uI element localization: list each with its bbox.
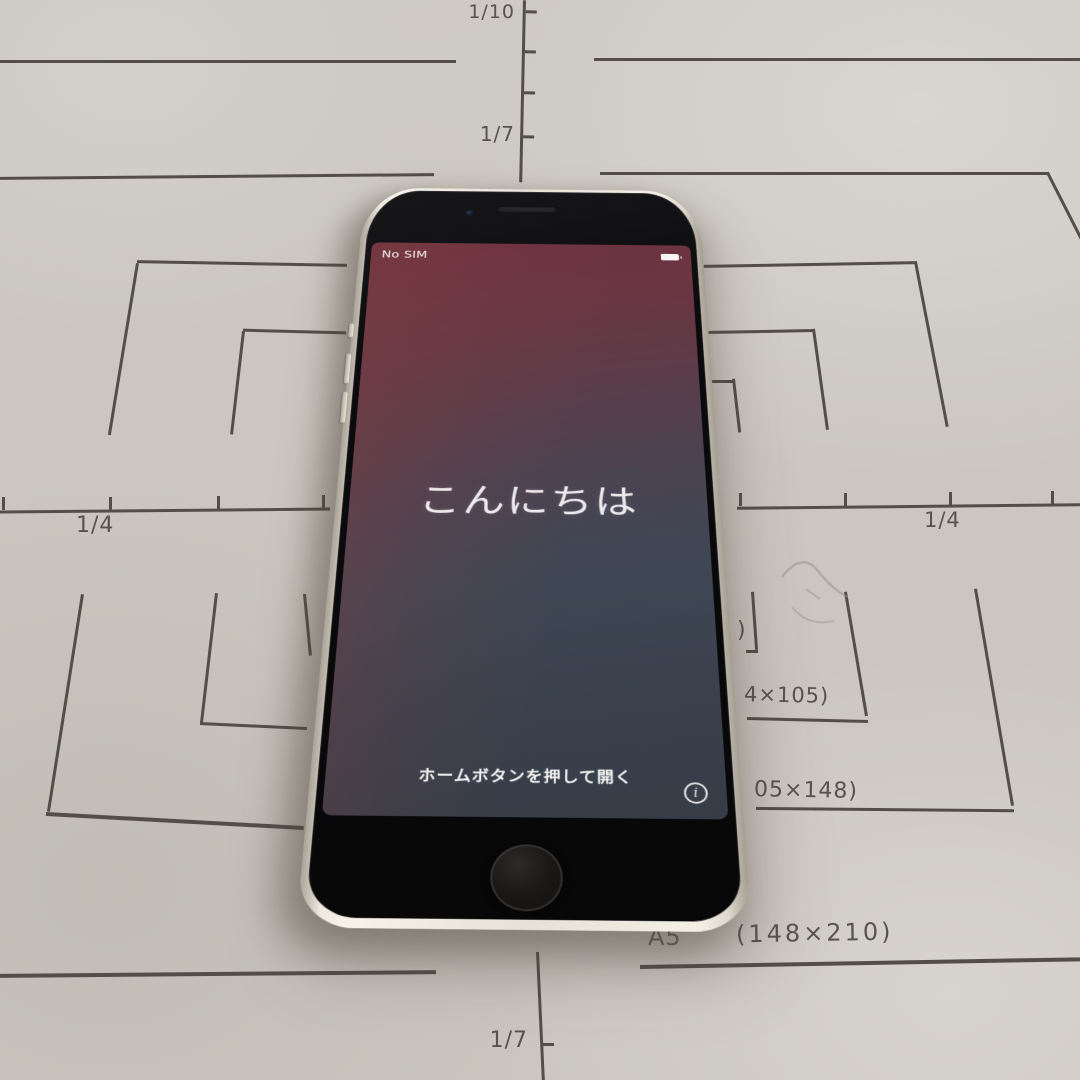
photo-scene: 1/10 1/7 1/4 1/4 ) 4×105) 05×148) xyxy=(0,0,1080,1080)
paper-line xyxy=(640,957,1080,969)
crop-mark xyxy=(974,588,1014,805)
setup-screen: No SIM こんにちは ホームボタンを押して開く i xyxy=(322,242,729,819)
size-label-b7-fragment: ) xyxy=(737,618,747,643)
crop-mark xyxy=(303,594,312,656)
crop-mark xyxy=(703,261,917,268)
paper-line-corner xyxy=(1046,172,1080,245)
crop-mark xyxy=(812,329,829,430)
front-camera xyxy=(466,210,475,216)
crop-mark xyxy=(200,593,218,722)
ruler-tick xyxy=(322,495,325,508)
crop-mark xyxy=(200,722,307,730)
paper-line xyxy=(0,970,436,978)
scale-label-1-4-left: 1/4 xyxy=(76,513,114,538)
ruler-tick xyxy=(526,10,537,13)
paper-line xyxy=(0,173,434,180)
crop-mark xyxy=(732,379,741,433)
crop-mark xyxy=(243,329,346,335)
size-label-a5-dims: (148×210) xyxy=(736,918,894,949)
crop-mark xyxy=(746,650,758,653)
mute-switch xyxy=(348,324,354,338)
size-label-a7-fragment: 4×105) xyxy=(744,682,830,707)
ruler-tick xyxy=(949,492,952,505)
crop-mark xyxy=(46,812,304,830)
scale-label-1-4-right: 1/4 xyxy=(924,508,961,532)
ruler-tick xyxy=(844,493,847,506)
pencil-scribble xyxy=(770,545,880,655)
paper-line xyxy=(600,172,1048,175)
crop-mark xyxy=(108,263,139,435)
top-ruler xyxy=(507,0,541,183)
ruler-tick xyxy=(1051,491,1054,504)
ruler-tick xyxy=(524,91,535,94)
size-label-a6-fragment: 05×148) xyxy=(754,777,858,804)
volume-down-button xyxy=(340,392,348,423)
hello-greeting: こんにちは xyxy=(348,473,709,525)
scale-label-1-10: 1/10 xyxy=(455,1,515,23)
ruler-tick xyxy=(109,497,112,510)
info-icon[interactable]: i xyxy=(683,782,708,803)
crop-mark xyxy=(230,331,245,435)
quarter-ruler-line-left xyxy=(0,508,330,514)
crop-mark xyxy=(47,594,84,812)
bottom-ruler-line xyxy=(536,952,545,1080)
volume-up-button xyxy=(344,354,352,384)
paper-line xyxy=(594,58,1080,61)
crop-mark xyxy=(751,592,758,650)
quarter-ruler-line-right xyxy=(737,503,1080,510)
phone-glass: No SIM こんにちは ホームボタンを押して開く i xyxy=(305,190,743,922)
crop-mark xyxy=(756,807,1014,812)
battery-icon xyxy=(661,254,679,261)
earpiece-speaker xyxy=(498,206,557,212)
crop-mark xyxy=(137,260,347,267)
ruler-tick xyxy=(2,497,5,510)
crop-mark xyxy=(914,261,949,427)
ruler-tick xyxy=(739,493,742,506)
scale-label-1-7-top: 1/7 xyxy=(458,122,515,146)
paper-line xyxy=(0,60,456,63)
home-button[interactable] xyxy=(489,844,562,912)
scale-label-1-7-bottom: 1/7 xyxy=(458,1028,528,1053)
ruler-tick xyxy=(525,50,536,53)
ruler-tick xyxy=(523,135,534,138)
ruler-tick xyxy=(217,496,220,509)
crop-mark xyxy=(704,329,815,334)
unlock-instruction: ホームボタンを押して開く xyxy=(325,763,727,789)
carrier-status: No SIM xyxy=(381,249,428,260)
ruler-tick xyxy=(543,1043,554,1046)
crop-mark xyxy=(747,717,868,723)
iphone-device: No SIM こんにちは ホームボタンを押して開く i xyxy=(296,188,752,933)
